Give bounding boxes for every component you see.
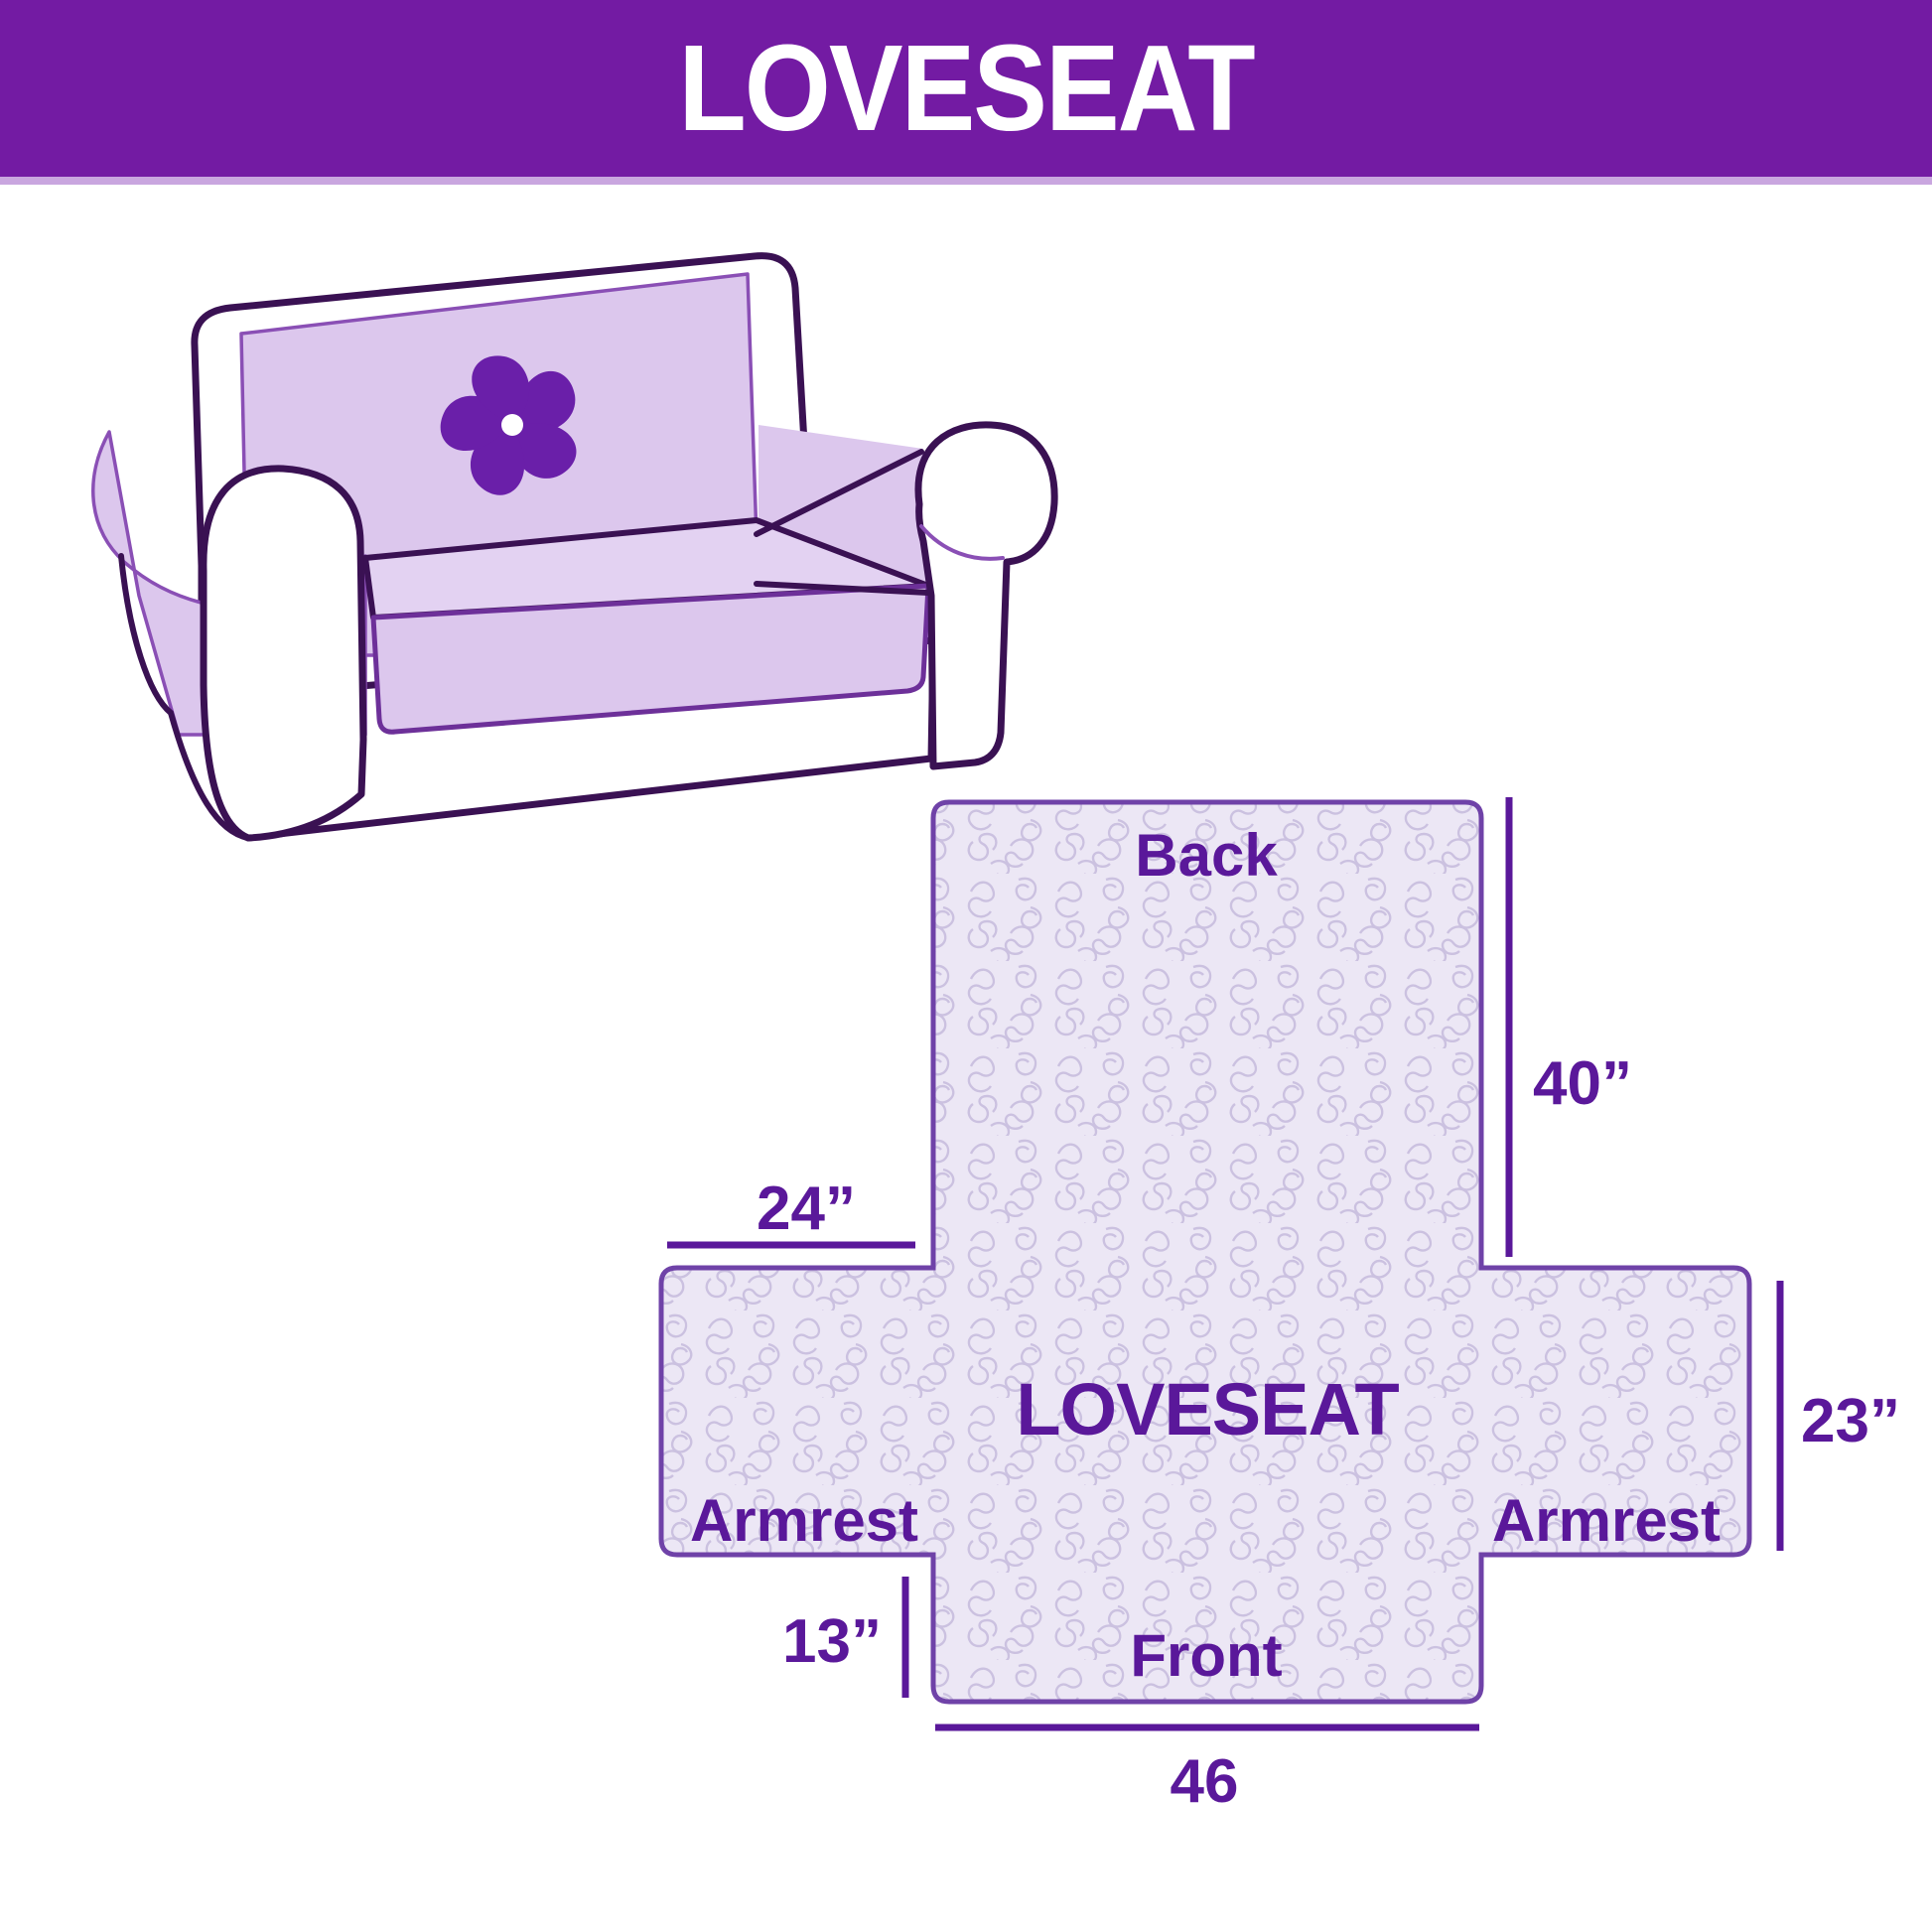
dim-front-width: 46 [1171,1747,1239,1816]
label-armrest-left: Armrest [690,1487,918,1554]
sofa-right-arm [918,425,1054,766]
label-armrest-right: Armrest [1492,1487,1721,1554]
label-center: LOVESEAT [1016,1368,1399,1450]
content-canvas: Back LOVESEAT Armrest Armrest Front 40” … [0,0,1932,1932]
cover-shape [661,802,1749,1702]
sofa-left-arm [204,469,363,838]
label-front-panel: Front [1130,1622,1282,1689]
dim-back-length: 40” [1533,1049,1632,1118]
sofa-illustration [93,256,1054,838]
dim-armrest-depth: 23” [1801,1387,1900,1455]
dim-front-drop: 13” [782,1607,882,1676]
cover-diagram: Back LOVESEAT Armrest Armrest Front 40” … [661,797,1900,1816]
dim-armrest-width: 24” [757,1174,856,1243]
label-back-panel: Back [1135,822,1278,889]
cover-quilt-pattern [661,802,1749,1702]
infographic-page: LOVESEAT [0,0,1932,1932]
